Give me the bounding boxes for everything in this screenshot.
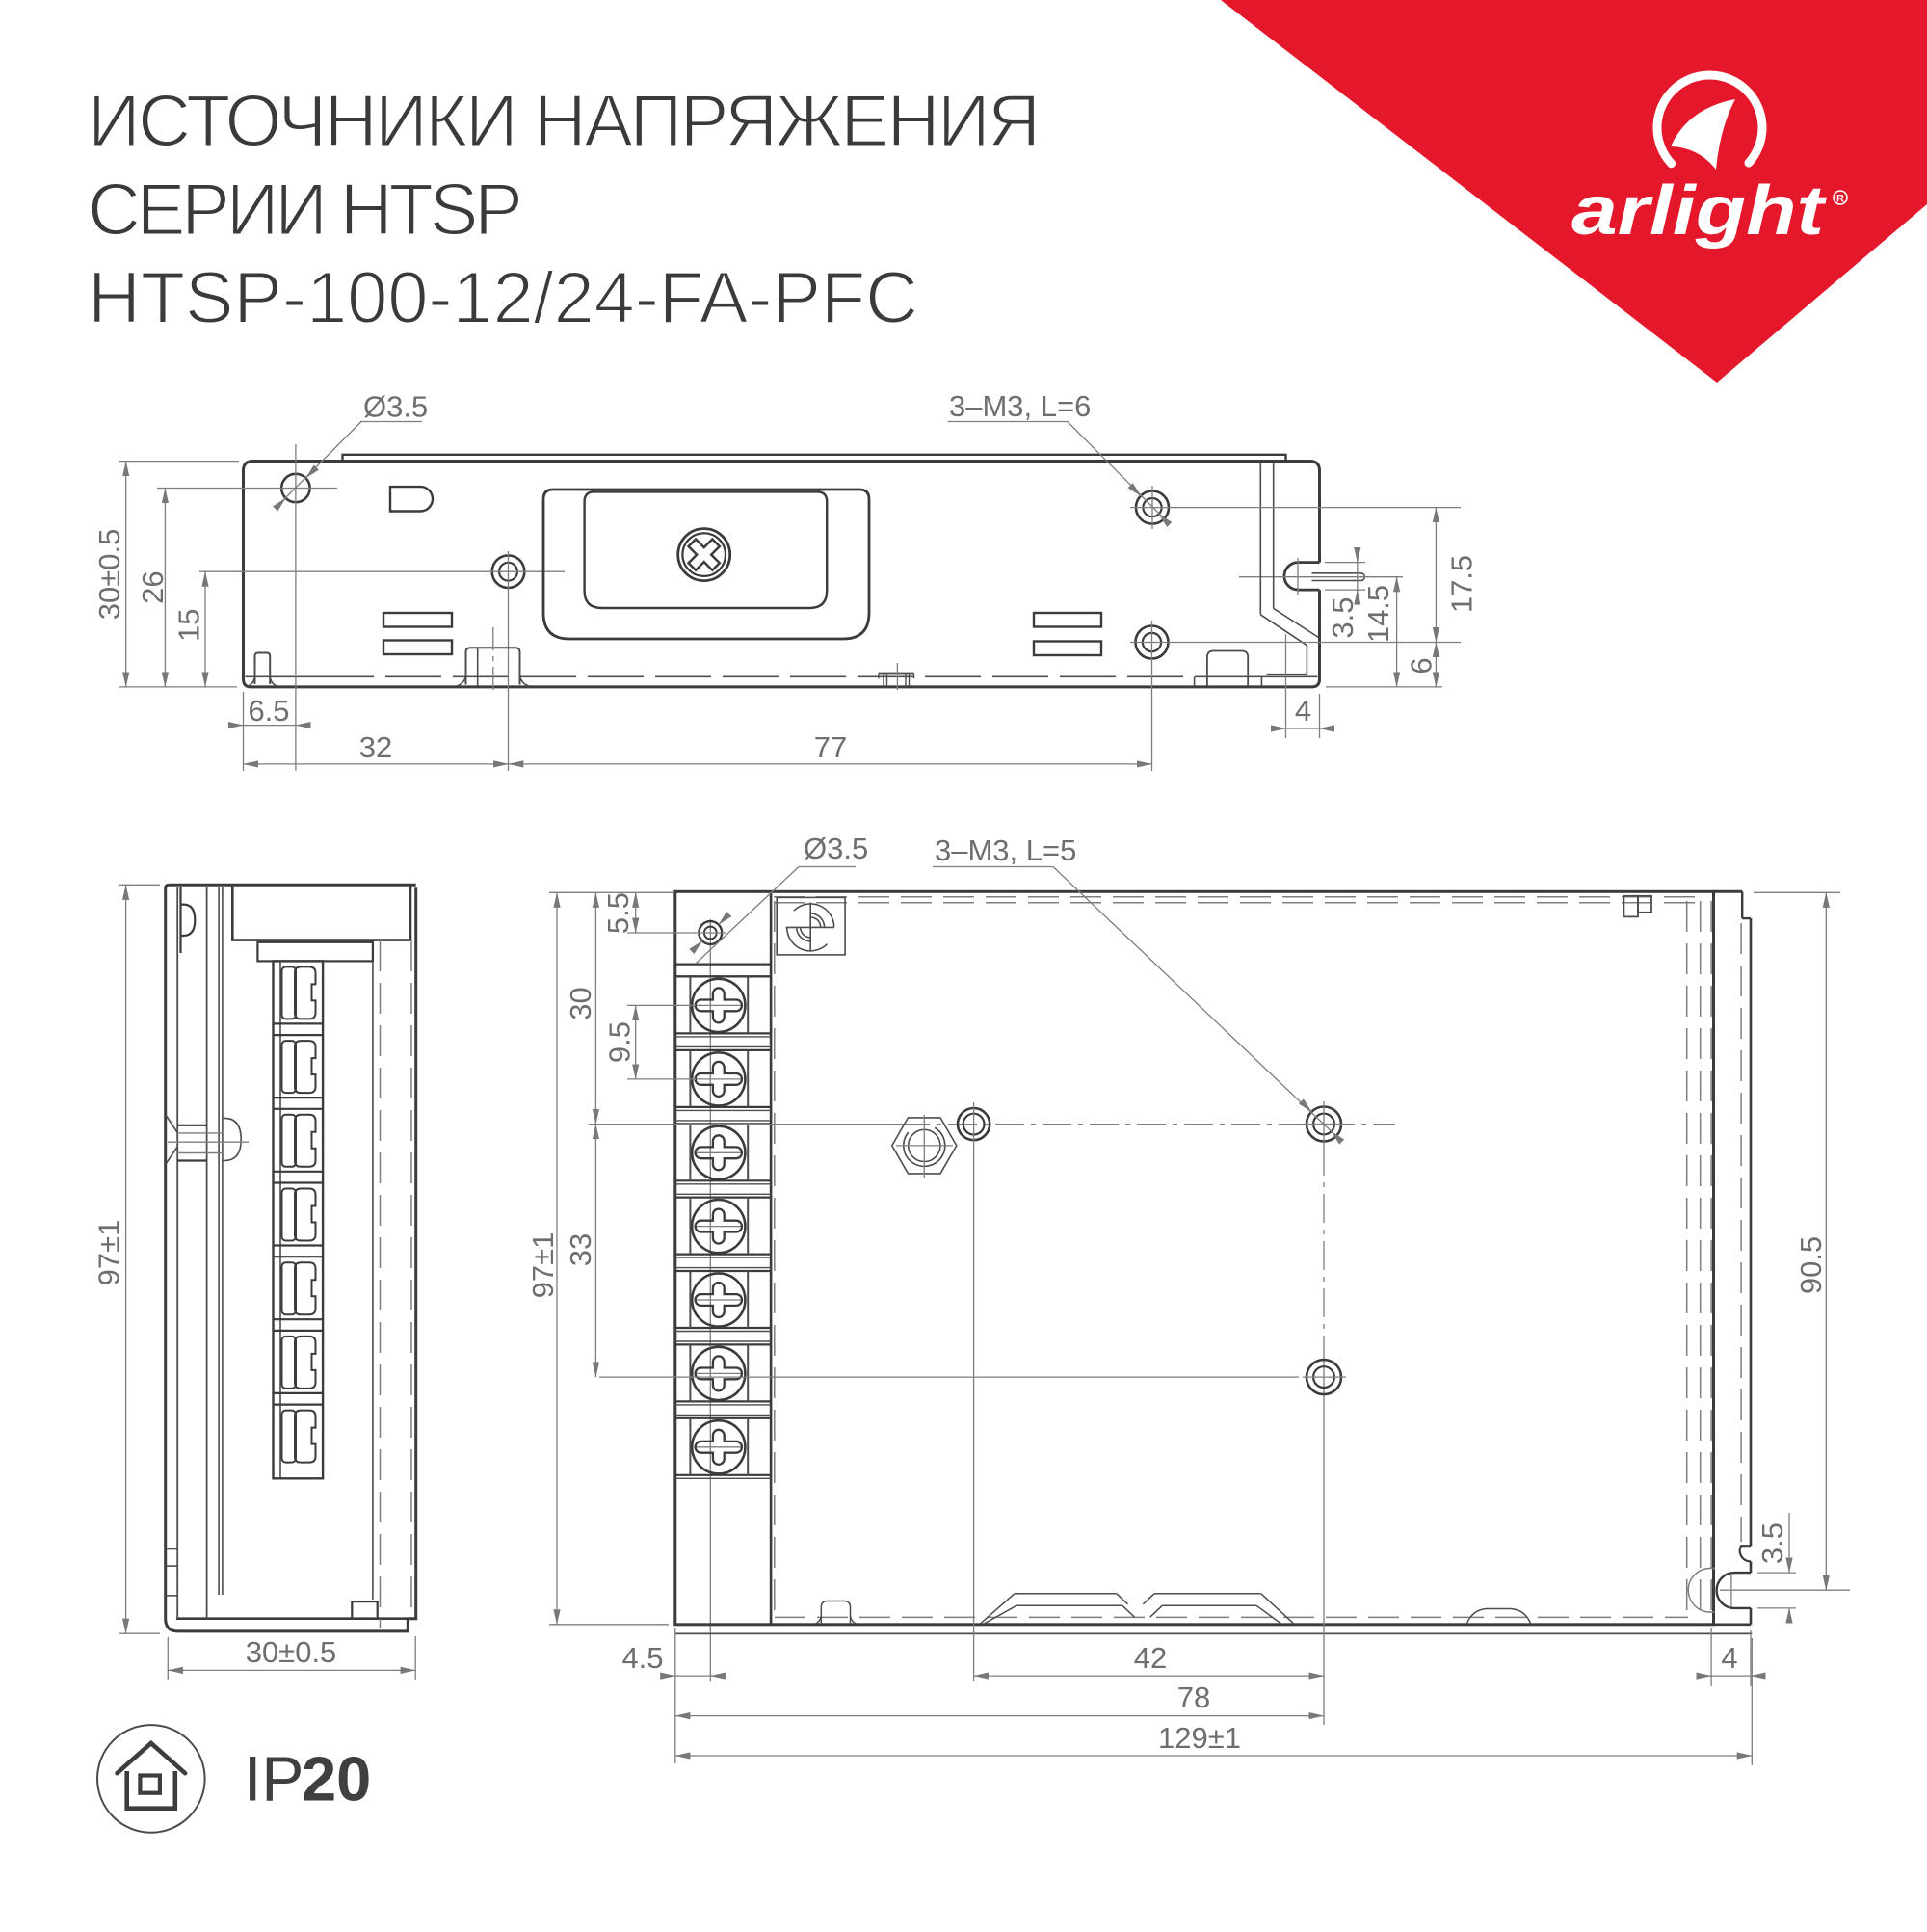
svg-text:30±0.5: 30±0.5: [246, 1635, 337, 1669]
svg-text:14.5: 14.5: [1361, 585, 1395, 643]
svg-text:4: 4: [1721, 1641, 1737, 1675]
svg-text:129±1: 129±1: [1158, 1721, 1241, 1755]
svg-text:3–M3, L=6: 3–M3, L=6: [949, 389, 1091, 423]
svg-text:15: 15: [172, 609, 206, 642]
svg-text:42: 42: [1134, 1641, 1167, 1675]
svg-text:17.5: 17.5: [1445, 555, 1479, 613]
svg-text:arlight: arlight: [1571, 172, 1828, 250]
svg-text:СЕРИИ HTSP: СЕРИИ HTSP: [88, 170, 523, 251]
svg-text:5.5: 5.5: [601, 892, 635, 934]
svg-text:IP: IP: [244, 1743, 304, 1814]
svg-text:4.5: 4.5: [621, 1641, 663, 1675]
svg-text:97±1: 97±1: [526, 1232, 560, 1299]
svg-text:32: 32: [359, 730, 392, 764]
svg-text:Ø3.5: Ø3.5: [363, 390, 428, 424]
svg-text:Ø3.5: Ø3.5: [804, 832, 868, 865]
svg-text:HTSP-100-12/24-FA-PFC: HTSP-100-12/24-FA-PFC: [88, 257, 918, 339]
svg-text:78: 78: [1177, 1681, 1210, 1714]
svg-text:6.5: 6.5: [248, 694, 289, 728]
svg-text:6: 6: [1405, 657, 1439, 674]
svg-text:3–M3, L=5: 3–M3, L=5: [935, 834, 1076, 867]
svg-text:97±1: 97±1: [92, 1220, 126, 1286]
svg-text:90.5: 90.5: [1794, 1236, 1828, 1294]
svg-text:33: 33: [564, 1233, 597, 1266]
svg-text:9.5: 9.5: [603, 1021, 637, 1063]
svg-text:3.5: 3.5: [1755, 1522, 1789, 1564]
svg-text:30: 30: [564, 987, 597, 1019]
svg-text:ИСТОЧНИКИ НАПРЯЖЕНИЯ: ИСТОЧНИКИ НАПРЯЖЕНИЯ: [88, 81, 1041, 163]
svg-text:R: R: [1836, 194, 1844, 205]
svg-text:4: 4: [1295, 694, 1311, 728]
svg-text:20: 20: [302, 1744, 371, 1814]
svg-text:3.5: 3.5: [1326, 596, 1359, 638]
svg-text:30±0.5: 30±0.5: [92, 529, 126, 621]
svg-text:26: 26: [136, 570, 170, 603]
svg-text:77: 77: [814, 730, 847, 764]
